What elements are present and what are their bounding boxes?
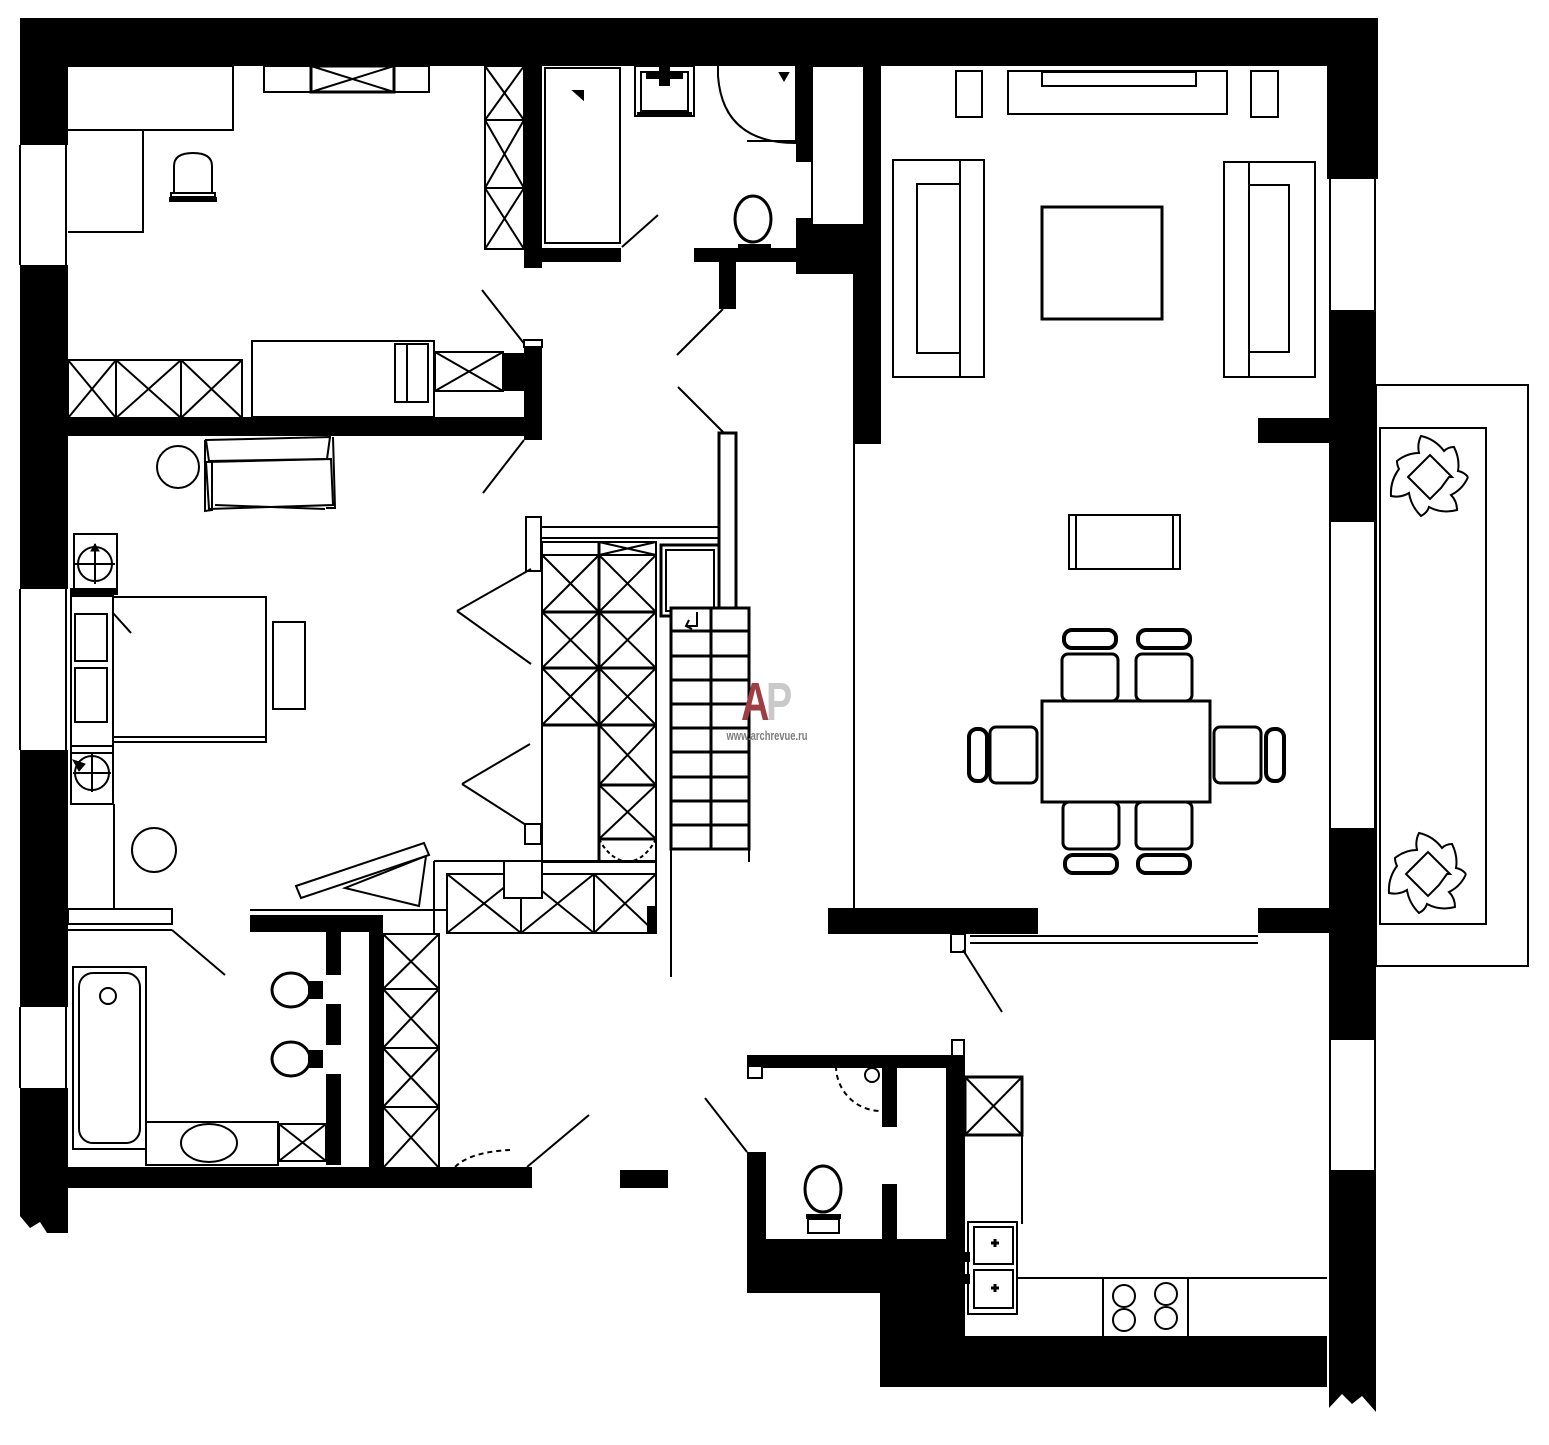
svg-text:www.archrevue.ru: www.archrevue.ru: [726, 728, 808, 743]
svg-text:P: P: [766, 672, 792, 733]
svg-text:A: A: [741, 672, 769, 733]
